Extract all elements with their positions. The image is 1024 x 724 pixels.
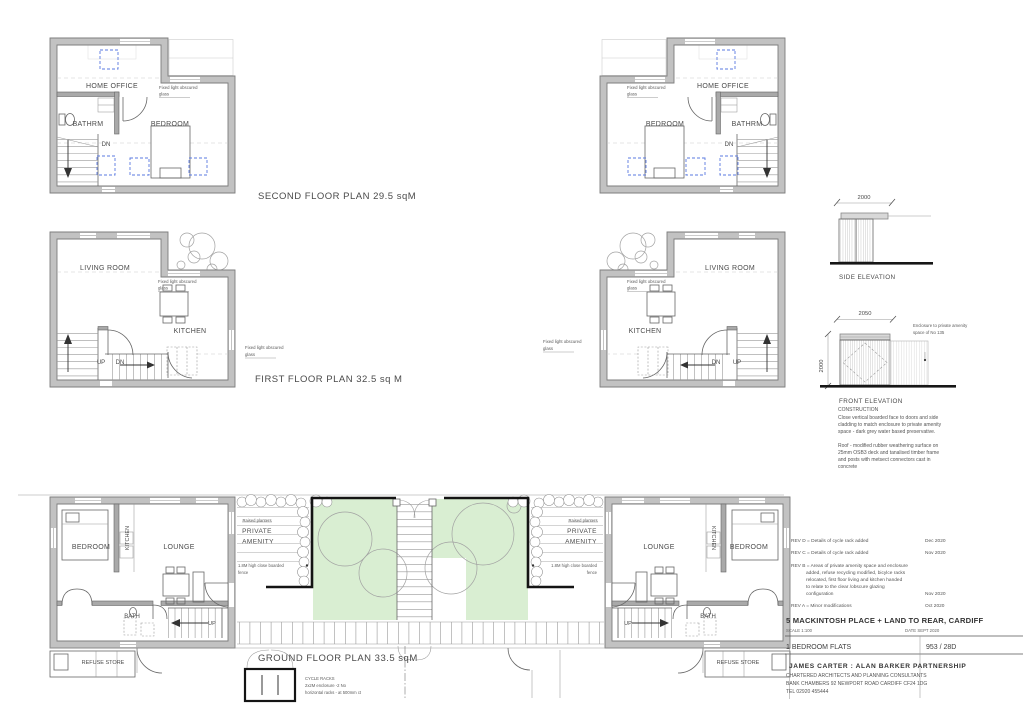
construction-line: cladding to match enclosure to private a…	[838, 422, 942, 428]
firm-description: CHARTERED ARCHITECTS AND PLANNING CONSUL…	[786, 673, 927, 679]
first-floor-plan-title: FIRST FLOOR PLAN 32.5 sq M	[255, 374, 402, 385]
ground-floor-plan: BEDROOM KITCHEN LOUNGE BATH UP REFUSE ST…	[0, 488, 1024, 724]
walkway-paving	[237, 622, 604, 644]
note-fixed-light: glass	[158, 286, 168, 291]
room-label-bathrm: BATHRM	[73, 121, 104, 128]
firm-address: BANK CHAMBERS 92 NEWPORT ROAD CARDIFF CF…	[786, 681, 927, 687]
room-label-bedroom: BEDROOM	[151, 121, 189, 128]
room-label-living-room: LIVING ROOM	[80, 265, 130, 272]
stair-label-dn: DN	[102, 142, 111, 148]
note-fixed-light: Fixed light obscured	[158, 279, 197, 284]
revision-d-date: Dec 2020	[925, 538, 946, 544]
construction-line: and posts with metsect connectors cast i…	[838, 457, 931, 463]
construction-line: Roof - modified rubber weathering surfac…	[838, 443, 939, 449]
note-fixed-light-outside: Fixed light obscured	[543, 339, 582, 344]
stair-label-up: UP	[624, 621, 632, 627]
refuse-store-label: REFUSE STORE	[717, 660, 760, 666]
second-floor-geometry	[50, 38, 235, 193]
scale-value: SCALE 1:100	[786, 628, 813, 633]
construction-line: space - dark grey water based preservati…	[838, 429, 935, 435]
note-cycle-racks: 2x2M enclosure -2 No	[305, 683, 347, 688]
room-label-lounge: LOUNGE	[643, 544, 674, 551]
construction-line: concrete	[838, 464, 857, 470]
stair-label-dn: DN	[116, 360, 125, 366]
second-floor-plan-right: HOME OFFICE Fixed light obscured glass B…	[600, 38, 785, 198]
second-floor-plan-title: SECOND FLOOR PLAN 29.5 sqM	[258, 191, 416, 202]
side-elevation-width-dim: 2000	[858, 195, 871, 201]
side-elevation-title: SIDE ELEVATION	[839, 274, 896, 281]
note-fixed-light-outside: Fixed light obscured	[245, 345, 284, 350]
stair-label-dn: DN	[712, 360, 721, 366]
room-label-kitchen: KITCHEN	[174, 328, 207, 335]
revision-b-date: Nov 2020	[925, 591, 946, 597]
date-value: DATE SEPT 2020	[905, 628, 940, 633]
project-title: 5 MACKINTOSH PLACE + LAND TO REAR, CARDI…	[786, 616, 984, 625]
note-fixed-light: glass	[627, 92, 637, 97]
room-label-bathrm: BATHRM	[732, 121, 763, 128]
architectural-drawing-sheet: HOME OFFICE Fixed light obscured glass B…	[0, 0, 1024, 724]
note-fence: 1.8M high close boarded	[238, 563, 285, 568]
revision-b: to relate to the clear /obscure glazing	[806, 584, 885, 590]
note-fixed-light: Fixed light obscured	[159, 85, 198, 90]
revision-a-date: Oct 2020	[925, 603, 945, 609]
ground-floor-unit	[50, 497, 235, 677]
note-fixed-light: Fixed light obscured	[627, 279, 666, 284]
stair-label-up: UP	[733, 360, 741, 366]
title-block: REV D = Details of cycle rack added Dec …	[785, 538, 1023, 699]
note-enclosure: space of No 135	[913, 330, 945, 335]
room-label-kitchen: KITCHEN	[710, 526, 716, 550]
room-label-bedroom: BEDROOM	[72, 544, 110, 551]
revision-d: REV D = Details of cycle rack added	[791, 538, 869, 544]
room-label-bath: BATH	[700, 614, 716, 620]
room-label-bedroom: BEDROOM	[730, 544, 768, 551]
note-fixed-light: glass	[159, 92, 169, 97]
firm-phone: TEL 02920 455444	[786, 689, 829, 695]
note-fence: 1.8M high close boarded	[551, 563, 598, 568]
refuse-store-label: REFUSE STORE	[82, 660, 125, 666]
construction-title: CONSTRUCTION	[838, 407, 879, 413]
note-enclosure: Enclosure to private amenity	[913, 323, 968, 328]
revision-a: REV A = Minor modifications	[791, 603, 852, 609]
front-elevation-height-dim: 2000	[819, 360, 825, 373]
room-label-living-room: LIVING ROOM	[705, 265, 755, 272]
private-amenity-label: AMENITY	[242, 539, 274, 546]
revision-b: relocated, first floor living and kitche…	[806, 577, 903, 583]
note-fence: fence	[238, 570, 249, 575]
room-label-home-office: HOME OFFICE	[86, 83, 138, 90]
note-cycle-racks: CYCLE RACKS	[305, 676, 335, 681]
room-label-bedroom: BEDROOM	[646, 121, 684, 128]
front-elevation-title: FRONT ELEVATION	[839, 398, 903, 405]
drawing-number: 953 / 28D	[926, 644, 956, 651]
note-cycle-racks: horizontal racks - at 500mm ct	[305, 690, 362, 695]
note-fixed-light-outside: glass	[245, 352, 255, 357]
room-label-bath: BATH	[124, 614, 140, 620]
room-label-lounge: LOUNGE	[163, 544, 194, 551]
room-label-home-office: HOME OFFICE	[697, 83, 749, 90]
note-fixed-light-outside: glass	[543, 346, 553, 351]
first-floor-geometry	[50, 232, 235, 387]
private-amenity-label: AMENITY	[565, 539, 597, 546]
room-label-kitchen: KITCHEN	[125, 526, 131, 550]
first-floor-plan-left: LIVING ROOM Fixed light obscured glass K…	[50, 232, 300, 394]
private-amenity-label: PRIVATE	[242, 528, 272, 535]
private-amenity-label: PRIVATE	[567, 528, 597, 535]
front-elevation-width-dim: 2050	[859, 311, 872, 317]
note-fixed-light: glass	[627, 286, 637, 291]
elevations-panel: 2000 SIDE ELEVATION 2050 2000 Enclosure …	[815, 185, 1024, 495]
note-raised-planters: Raised planters	[242, 518, 271, 523]
stair-label-up: UP	[97, 360, 105, 366]
drawing-title: 1 BEDROOM FLATS	[786, 644, 852, 651]
central-stair	[393, 499, 436, 660]
stair-label-up: UP	[208, 621, 216, 627]
note-fence: fence	[587, 570, 598, 575]
stair-label-dn: DN	[725, 142, 734, 148]
construction-line: Close vertical boarded face to doors and…	[838, 415, 939, 421]
revision-b: configuration	[806, 591, 834, 597]
construction-line: 25mm OSB3 deck and tanalised timber fram…	[838, 450, 939, 456]
revision-c-date: Nov 2020	[925, 550, 946, 556]
amenity-garden-right	[432, 499, 528, 620]
first-floor-plan-right: LIVING ROOM Fixed light obscured glass K…	[530, 232, 785, 394]
amenity-garden-left	[313, 499, 397, 620]
ground-floor-plan-title: GROUND FLOOR PLAN 33.5 sqM	[258, 653, 418, 664]
room-label-kitchen: KITCHEN	[629, 328, 662, 335]
revision-c: REV C = Details of cycle rack added	[791, 550, 869, 556]
revision-b: REV B = Areas of private amenity space a…	[791, 563, 908, 569]
note-fixed-light: Fixed light obscured	[627, 85, 666, 90]
firm-name: JAMES CARTER : ALAN BARKER PARTNERSHIP	[789, 663, 966, 670]
revision-b: added, refuse recycling modified, bicylc…	[806, 570, 906, 576]
note-raised-planters: Raised planters	[568, 518, 597, 523]
second-floor-plan-left: HOME OFFICE Fixed light obscured glass B…	[50, 38, 235, 198]
